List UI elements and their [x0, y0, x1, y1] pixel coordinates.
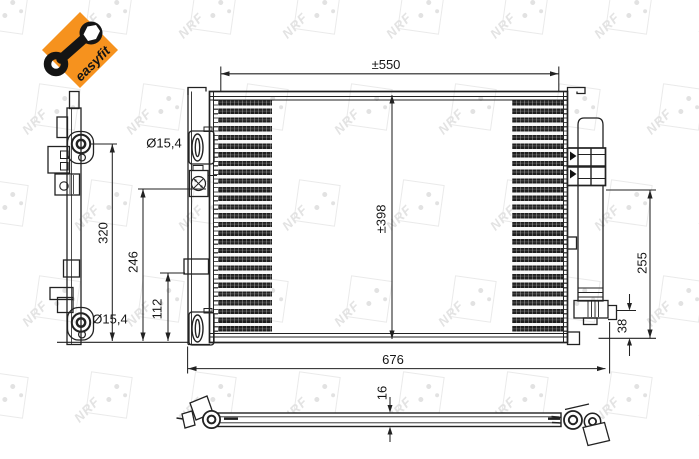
dimension-labels: ±550 ±398 676 Ø15,4 Ø15,4 320 246 112 25…	[92, 57, 649, 400]
label-lower-fitting-height: 112	[150, 299, 165, 320]
left-side-view	[48, 92, 94, 345]
connection-block	[568, 148, 606, 186]
label-bar-thickness: 16	[375, 386, 390, 400]
left-side-plate	[188, 88, 210, 345]
side-upper-bracket	[48, 147, 70, 174]
label-top-width: ±550	[372, 57, 401, 72]
right-side-view	[568, 118, 617, 325]
label-side-height: 320	[96, 222, 111, 244]
bottom-right-foot	[568, 332, 580, 345]
dimension-lines	[57, 67, 656, 443]
label-core-height: ±398	[374, 205, 389, 234]
top-right-tab	[568, 88, 586, 94]
core-outline	[210, 92, 568, 343]
right-mid-tab	[568, 237, 577, 249]
technical-drawing-page: NRFNRFNRFNRFNRFNRFNRFNRFNRFNRFNRFNRFNRFN…	[0, 0, 699, 459]
label-overall-width: 676	[382, 352, 404, 367]
front-upper-bracket	[190, 166, 218, 197]
label-upper-fitting-height: 246	[126, 251, 141, 273]
label-top-port-diameter: Ø15,4	[146, 136, 181, 151]
label-bracket-height: 38	[615, 319, 630, 333]
side-top-tab	[57, 117, 68, 138]
drier-bottom-bracket	[574, 301, 617, 325]
label-drier-height: 255	[635, 252, 650, 274]
easyfit-badge: easyfit	[36, 6, 126, 96]
drier-cylinder	[578, 118, 603, 301]
label-bottom-port-diameter: Ø15,4	[92, 312, 127, 327]
bottom-view	[177, 396, 610, 446]
side-bottom-bracket	[50, 288, 73, 313]
bottom-left-fitting	[177, 396, 221, 428]
